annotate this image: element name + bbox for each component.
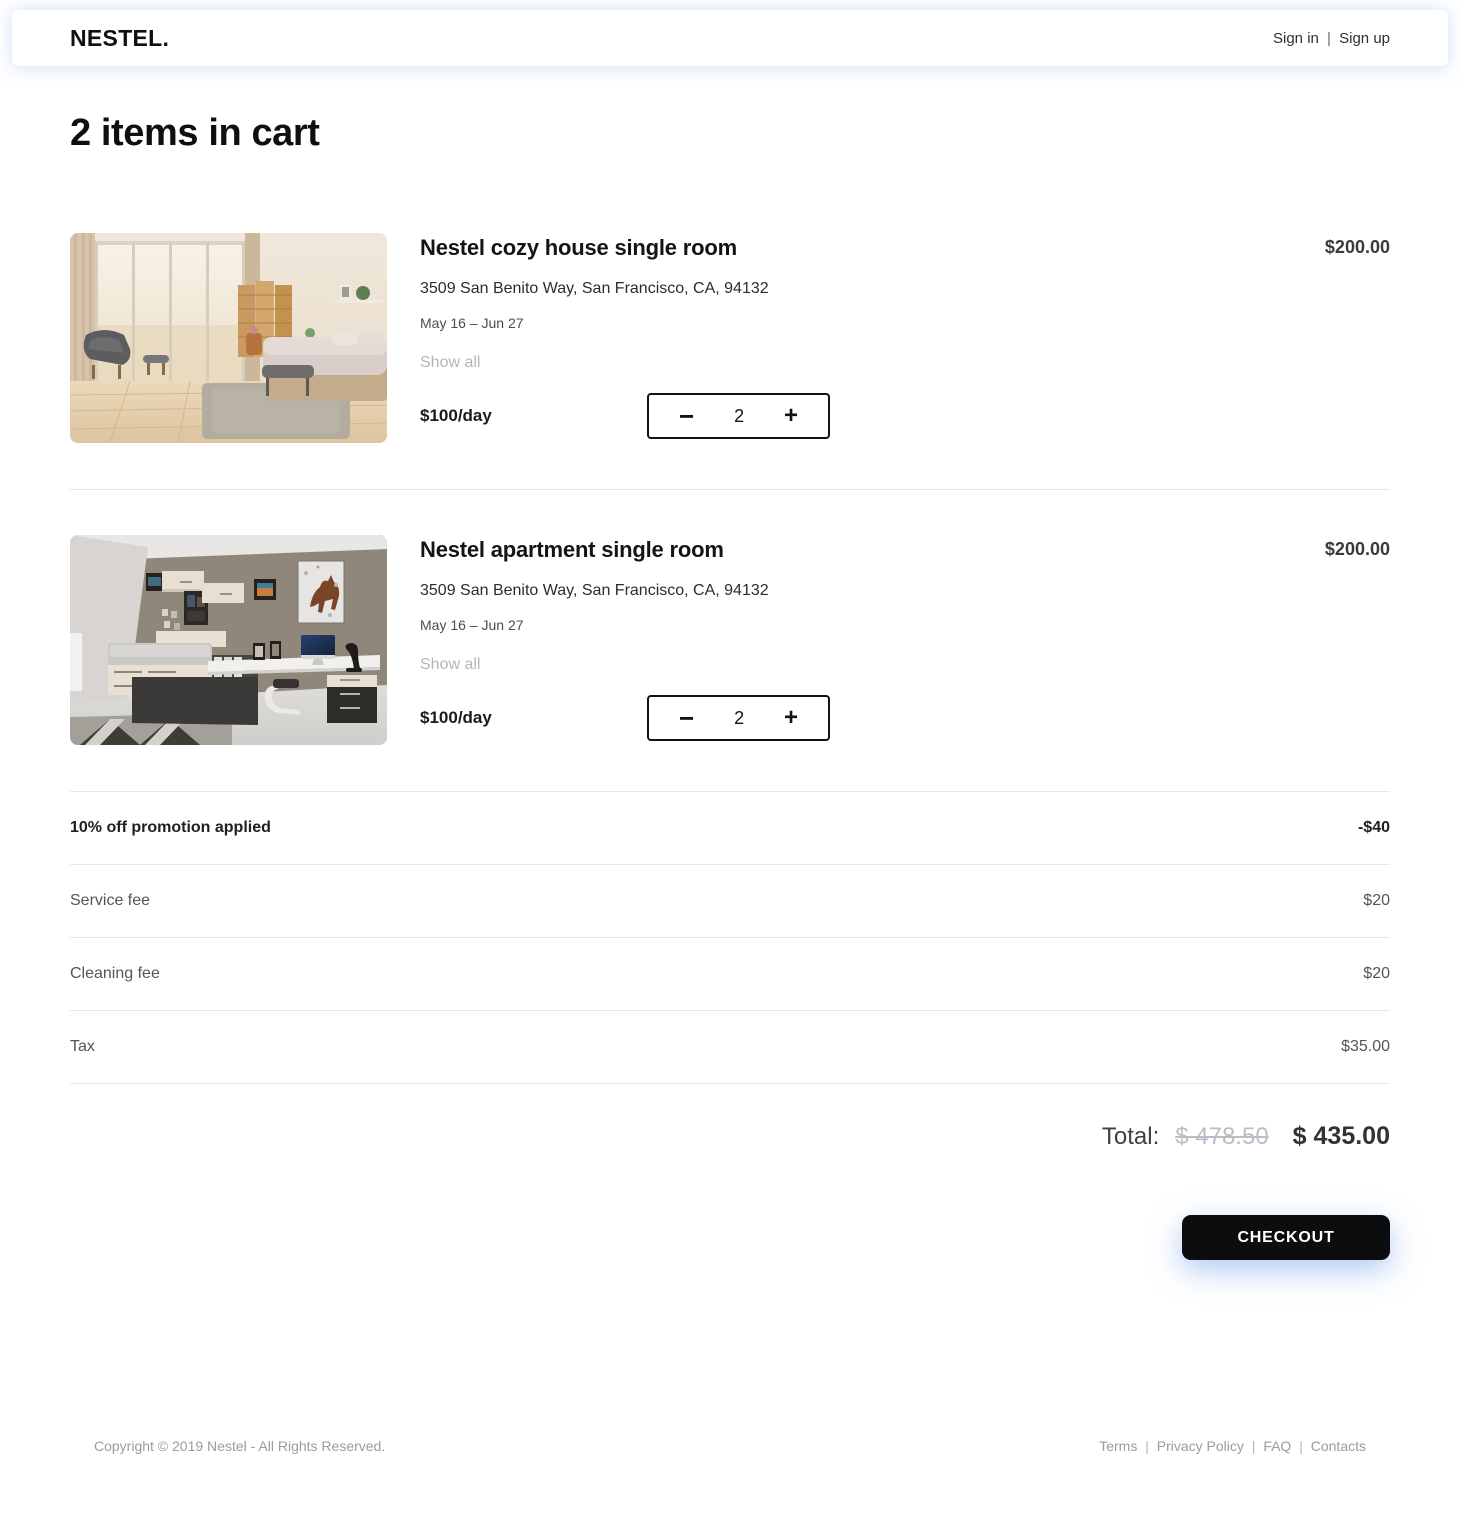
apartment-room-illustration <box>70 535 387 745</box>
item-rate-row: $100/day − 2 + <box>420 695 1325 741</box>
footer-separator: | <box>1252 1438 1256 1454</box>
footer-separator: | <box>1299 1438 1303 1454</box>
top-nav-bar: NESTEL. Sign in | Sign up <box>12 10 1448 66</box>
item-details: Nestel apartment single room 3509 San Be… <box>420 535 1325 741</box>
item-address: 3509 San Benito Way, San Francisco, CA, … <box>420 582 1325 600</box>
summary-label: Service fee <box>70 892 150 910</box>
page-title: 2 items in cart <box>70 112 1390 155</box>
footer-link-faq[interactable]: FAQ <box>1263 1438 1291 1454</box>
page-footer: Copyright © 2019 Nestel - All Rights Res… <box>0 1438 1460 1492</box>
auth-separator: | <box>1327 30 1331 47</box>
order-summary: 10% off promotion applied -$40 Service f… <box>70 792 1390 1084</box>
footer-links: Terms | Privacy Policy | FAQ | Contacts <box>1099 1438 1366 1454</box>
item-price: $200.00 <box>1325 535 1390 560</box>
item-dates: May 16 – Jun 27 <box>420 315 1325 331</box>
quantity-stepper: − 2 + <box>647 393 830 439</box>
total-row: Total: $ 478.50 $ 435.00 <box>70 1122 1390 1151</box>
footer-copyright: Copyright © 2019 Nestel - All Rights Res… <box>94 1438 385 1454</box>
footer-separator: | <box>1145 1438 1149 1454</box>
total-label: Total: <box>1102 1123 1159 1151</box>
footer-link-terms[interactable]: Terms <box>1099 1438 1137 1454</box>
quantity-decrease-button[interactable]: − <box>679 705 694 731</box>
footer-link-privacy-policy[interactable]: Privacy Policy <box>1157 1438 1244 1454</box>
item-photo-cozy-house <box>70 233 387 443</box>
auth-links: Sign in | Sign up <box>1273 30 1390 47</box>
item-rate: $100/day <box>420 708 647 728</box>
summary-row-promotion: 10% off promotion applied -$40 <box>70 792 1390 865</box>
footer-link-contacts[interactable]: Contacts <box>1311 1438 1366 1454</box>
total-new-price: $ 435.00 <box>1293 1122 1390 1151</box>
item-dates: May 16 – Jun 27 <box>420 617 1325 633</box>
item-title: Nestel cozy house single room <box>420 235 1325 261</box>
quantity-value: 2 <box>734 406 744 427</box>
total-old-price: $ 478.50 <box>1175 1123 1268 1151</box>
summary-label: Tax <box>70 1038 95 1056</box>
item-details: Nestel cozy house single room 3509 San B… <box>420 233 1325 439</box>
summary-value: $20 <box>1363 892 1390 910</box>
summary-label: Cleaning fee <box>70 965 160 983</box>
item-address: 3509 San Benito Way, San Francisco, CA, … <box>420 280 1325 298</box>
item-rate-row: $100/day − 2 + <box>420 393 1325 439</box>
summary-label: 10% off promotion applied <box>70 819 271 837</box>
sign-up-link[interactable]: Sign up <box>1339 30 1390 47</box>
summary-value: -$40 <box>1358 819 1390 837</box>
quantity-value: 2 <box>734 708 744 729</box>
quantity-increase-button[interactable]: + <box>784 404 798 428</box>
summary-value: $35.00 <box>1341 1038 1390 1056</box>
quantity-increase-button[interactable]: + <box>784 706 798 730</box>
show-all-link[interactable]: Show all <box>420 656 480 674</box>
quantity-stepper: − 2 + <box>647 695 830 741</box>
summary-row-service-fee: Service fee $20 <box>70 865 1390 938</box>
show-all-link[interactable]: Show all <box>420 354 480 372</box>
item-price: $200.00 <box>1325 233 1390 258</box>
quantity-decrease-button[interactable]: − <box>679 403 694 429</box>
summary-row-cleaning-fee: Cleaning fee $20 <box>70 938 1390 1011</box>
checkout-button[interactable]: CHECKOUT <box>1182 1215 1390 1260</box>
item-rate: $100/day <box>420 406 647 426</box>
summary-value: $20 <box>1363 965 1390 983</box>
summary-row-tax: Tax $35.00 <box>70 1011 1390 1084</box>
cozy-house-room-illustration <box>70 233 387 443</box>
sign-in-link[interactable]: Sign in <box>1273 30 1319 47</box>
cart-item-apartment: Nestel apartment single room 3509 San Be… <box>70 535 1390 792</box>
item-photo-apartment <box>70 535 387 745</box>
checkout-area: CHECKOUT <box>70 1215 1390 1260</box>
item-title: Nestel apartment single room <box>420 537 1325 563</box>
brand-logo[interactable]: NESTEL. <box>70 25 169 52</box>
cart-item-cozy-house: Nestel cozy house single room 3509 San B… <box>70 233 1390 490</box>
